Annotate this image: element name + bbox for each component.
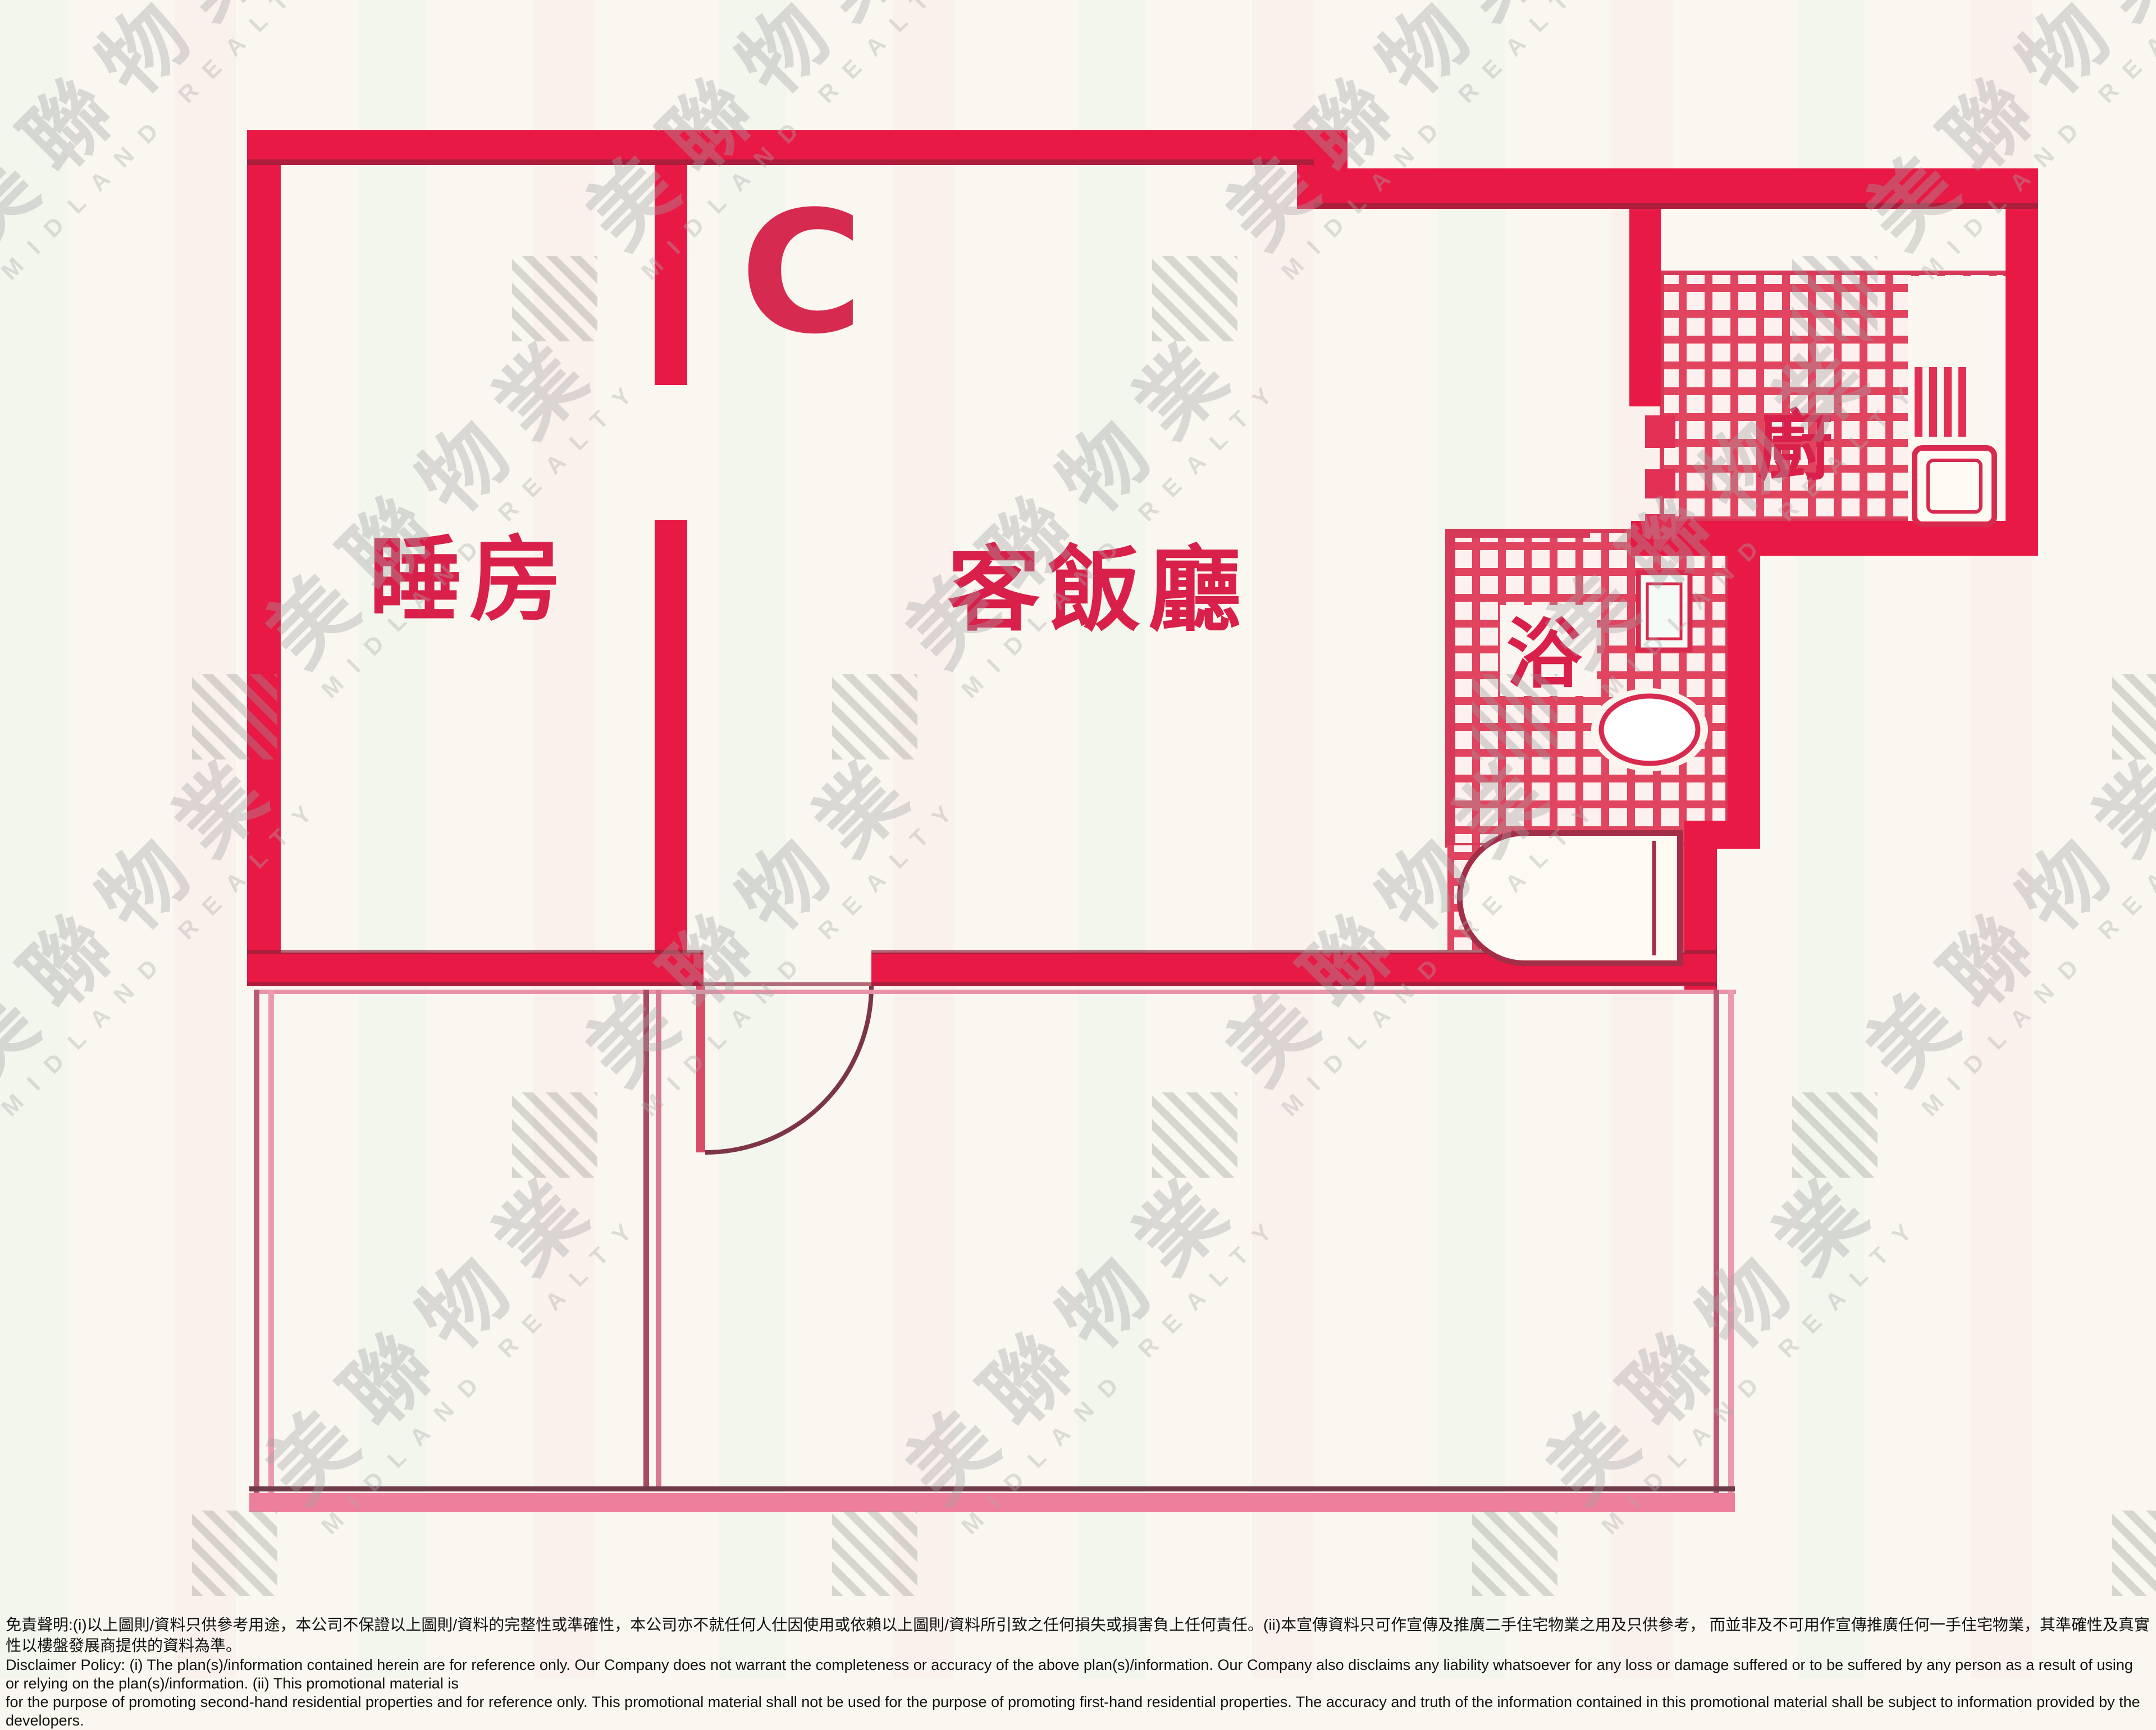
room-label-bathroom: 浴	[1506, 610, 1590, 698]
kitchen-door-dashes	[1645, 415, 1675, 539]
door-leaf	[696, 986, 705, 1152]
terrace-top-line	[254, 990, 1736, 994]
toilet-icon	[1601, 696, 1698, 763]
wall-top-right	[1314, 168, 2038, 209]
terrace-right-line-inner	[1728, 990, 1734, 1495]
kitchen-window-strip	[1662, 204, 2006, 273]
terrace-bottom-band	[249, 1493, 1735, 1512]
terrace-left-line-inner	[268, 990, 274, 1495]
floor-plan-svg: C 睡房 客飯廳 浴 廚	[0, 0, 2156, 1678]
wall-kitchen-right	[2006, 168, 2038, 556]
terrace-area	[249, 990, 1736, 1512]
terrace-left-line-outer	[254, 990, 259, 1495]
wall-bottom-left	[247, 953, 704, 986]
disclaimer-en-line2: for the purpose of promoting second-hand…	[6, 1693, 2150, 1730]
terrace-divider-outer	[643, 990, 649, 1491]
wall-left	[247, 130, 281, 986]
terrace-divider-inner	[656, 990, 661, 1491]
wall-bedroom-upper	[655, 165, 687, 385]
room-label-kitchen: 廚	[1757, 402, 1841, 491]
room-label-living-dining: 客飯廳	[948, 536, 1249, 644]
unit-label: C	[740, 175, 864, 371]
wall-bedroom-lower	[655, 520, 687, 953]
door-swing-arc	[705, 986, 871, 1152]
entrance-door	[696, 986, 871, 1152]
terrace-bottom-dark-line	[249, 1486, 1735, 1491]
floor-plan: C 睡房 客飯廳 浴 廚	[0, 0, 2156, 1678]
disclaimer-zh: 免責聲明:(i)以上圖則/資料只供參考用途，本公司不保證以上圖則/資料的完整性或…	[6, 1614, 2150, 1656]
terrace-right-line-outer	[1714, 990, 1719, 1495]
disclaimer: 免責聲明:(i)以上圖則/資料只供參考用途，本公司不保證以上圖則/資料的完整性或…	[6, 1614, 2150, 1730]
wall-bathroom-right	[1728, 521, 1760, 845]
wall-kitchen-left	[1629, 204, 1661, 406]
bathtub-icon	[1460, 833, 1680, 963]
disclaimer-en-line1: Disclaimer Policy: (i) The plan(s)/infor…	[6, 1656, 2150, 1693]
room-label-bedroom: 睡房	[369, 526, 570, 634]
